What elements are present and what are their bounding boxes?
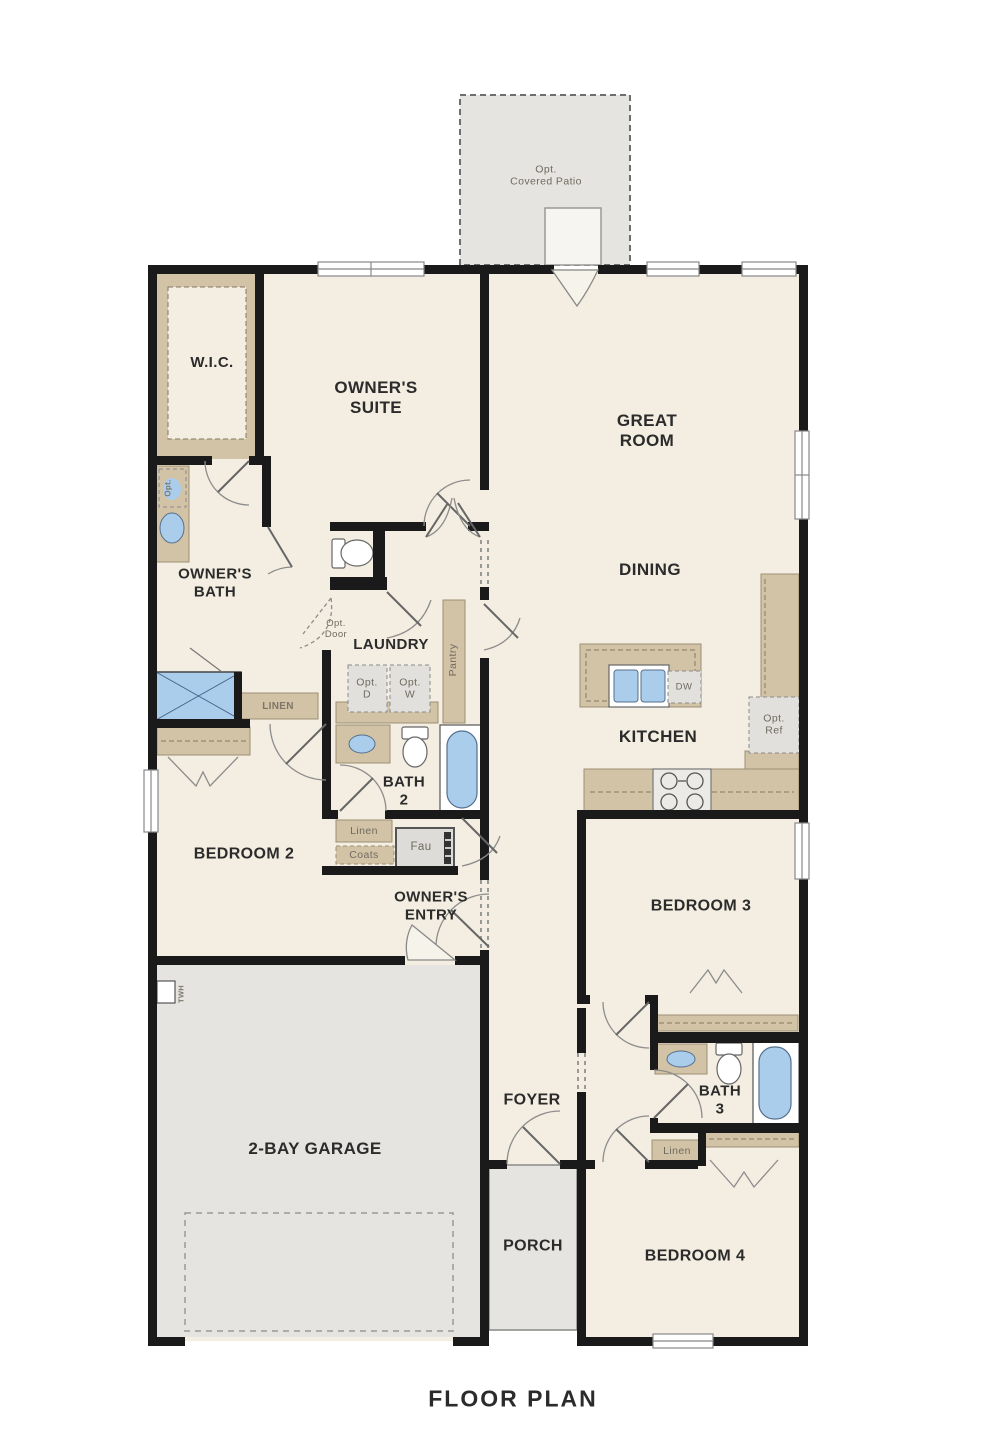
floor-plan-drawing — [0, 0, 1000, 1447]
foyer-hall-opening — [576, 1053, 587, 1092]
great-room-window-top-1 — [647, 262, 699, 276]
garage-floor — [157, 965, 489, 1337]
dishwasher — [668, 671, 701, 703]
bedroom3-window — [795, 823, 809, 879]
bath3-tub — [753, 1041, 799, 1125]
dining-hall-opening — [479, 540, 490, 587]
bath2-sink — [349, 735, 375, 753]
bedroom4-window — [653, 1334, 713, 1348]
bath2-tub — [440, 725, 484, 815]
stove — [653, 769, 711, 813]
covered-patio — [460, 95, 630, 265]
owners-bath-sink — [160, 513, 184, 543]
kitchen-sink — [609, 665, 669, 707]
bath3-sink — [667, 1051, 695, 1067]
porch-floor — [489, 1165, 577, 1330]
great-room-window-right — [795, 431, 809, 519]
great-room-window-top-2 — [742, 262, 796, 276]
linen3-shelf — [652, 1140, 702, 1163]
water-heater — [157, 981, 175, 1003]
optional-sink — [163, 478, 181, 500]
bedroom2-window — [144, 770, 158, 832]
patio-step — [545, 208, 601, 265]
linen2-shelf — [336, 820, 392, 842]
coats-shelf — [336, 846, 394, 864]
optional-washer — [390, 665, 430, 712]
kitchen-counter-right — [761, 574, 799, 698]
owners-toilet — [332, 539, 373, 568]
bath2-toilet — [402, 727, 428, 767]
optional-refrigerator — [749, 697, 799, 753]
optional-dryer — [348, 665, 387, 712]
owners-suite-window — [318, 262, 424, 276]
fau-unit — [396, 828, 454, 868]
linen-closet-hall — [238, 693, 318, 719]
floor-plan: Opt. Covered Patio W.I.C. OWNER'S SUITE … — [0, 0, 1000, 1447]
bath3-toilet — [716, 1043, 742, 1084]
pantry-shelf — [443, 600, 465, 723]
